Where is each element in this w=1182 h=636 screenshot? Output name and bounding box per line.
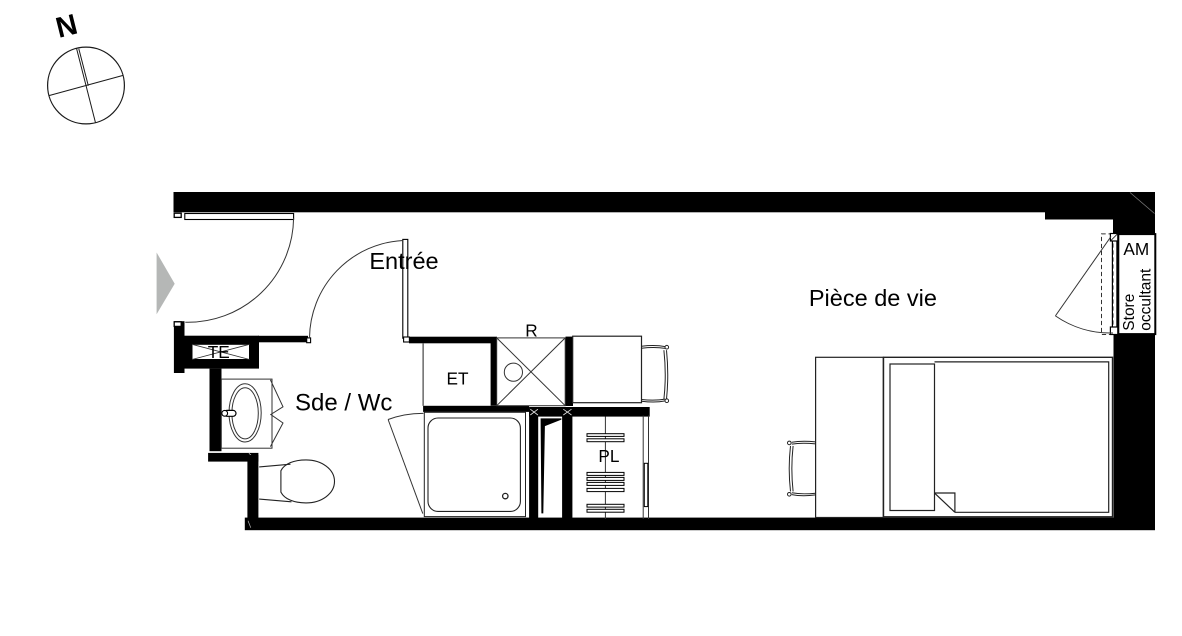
svg-text:Entrée: Entrée xyxy=(369,248,438,274)
svg-text:ET: ET xyxy=(447,368,469,388)
svg-text:occultant: occultant xyxy=(1137,268,1154,331)
svg-text:TE: TE xyxy=(208,342,230,362)
svg-text:Sde / Wc: Sde / Wc xyxy=(295,390,392,417)
svg-text:Store: Store xyxy=(1121,294,1138,331)
svg-text:PL: PL xyxy=(598,446,619,466)
svg-text:AM: AM xyxy=(1123,239,1149,259)
svg-text:Pièce de vie: Pièce de vie xyxy=(809,285,937,311)
svg-text:R: R xyxy=(525,321,537,341)
